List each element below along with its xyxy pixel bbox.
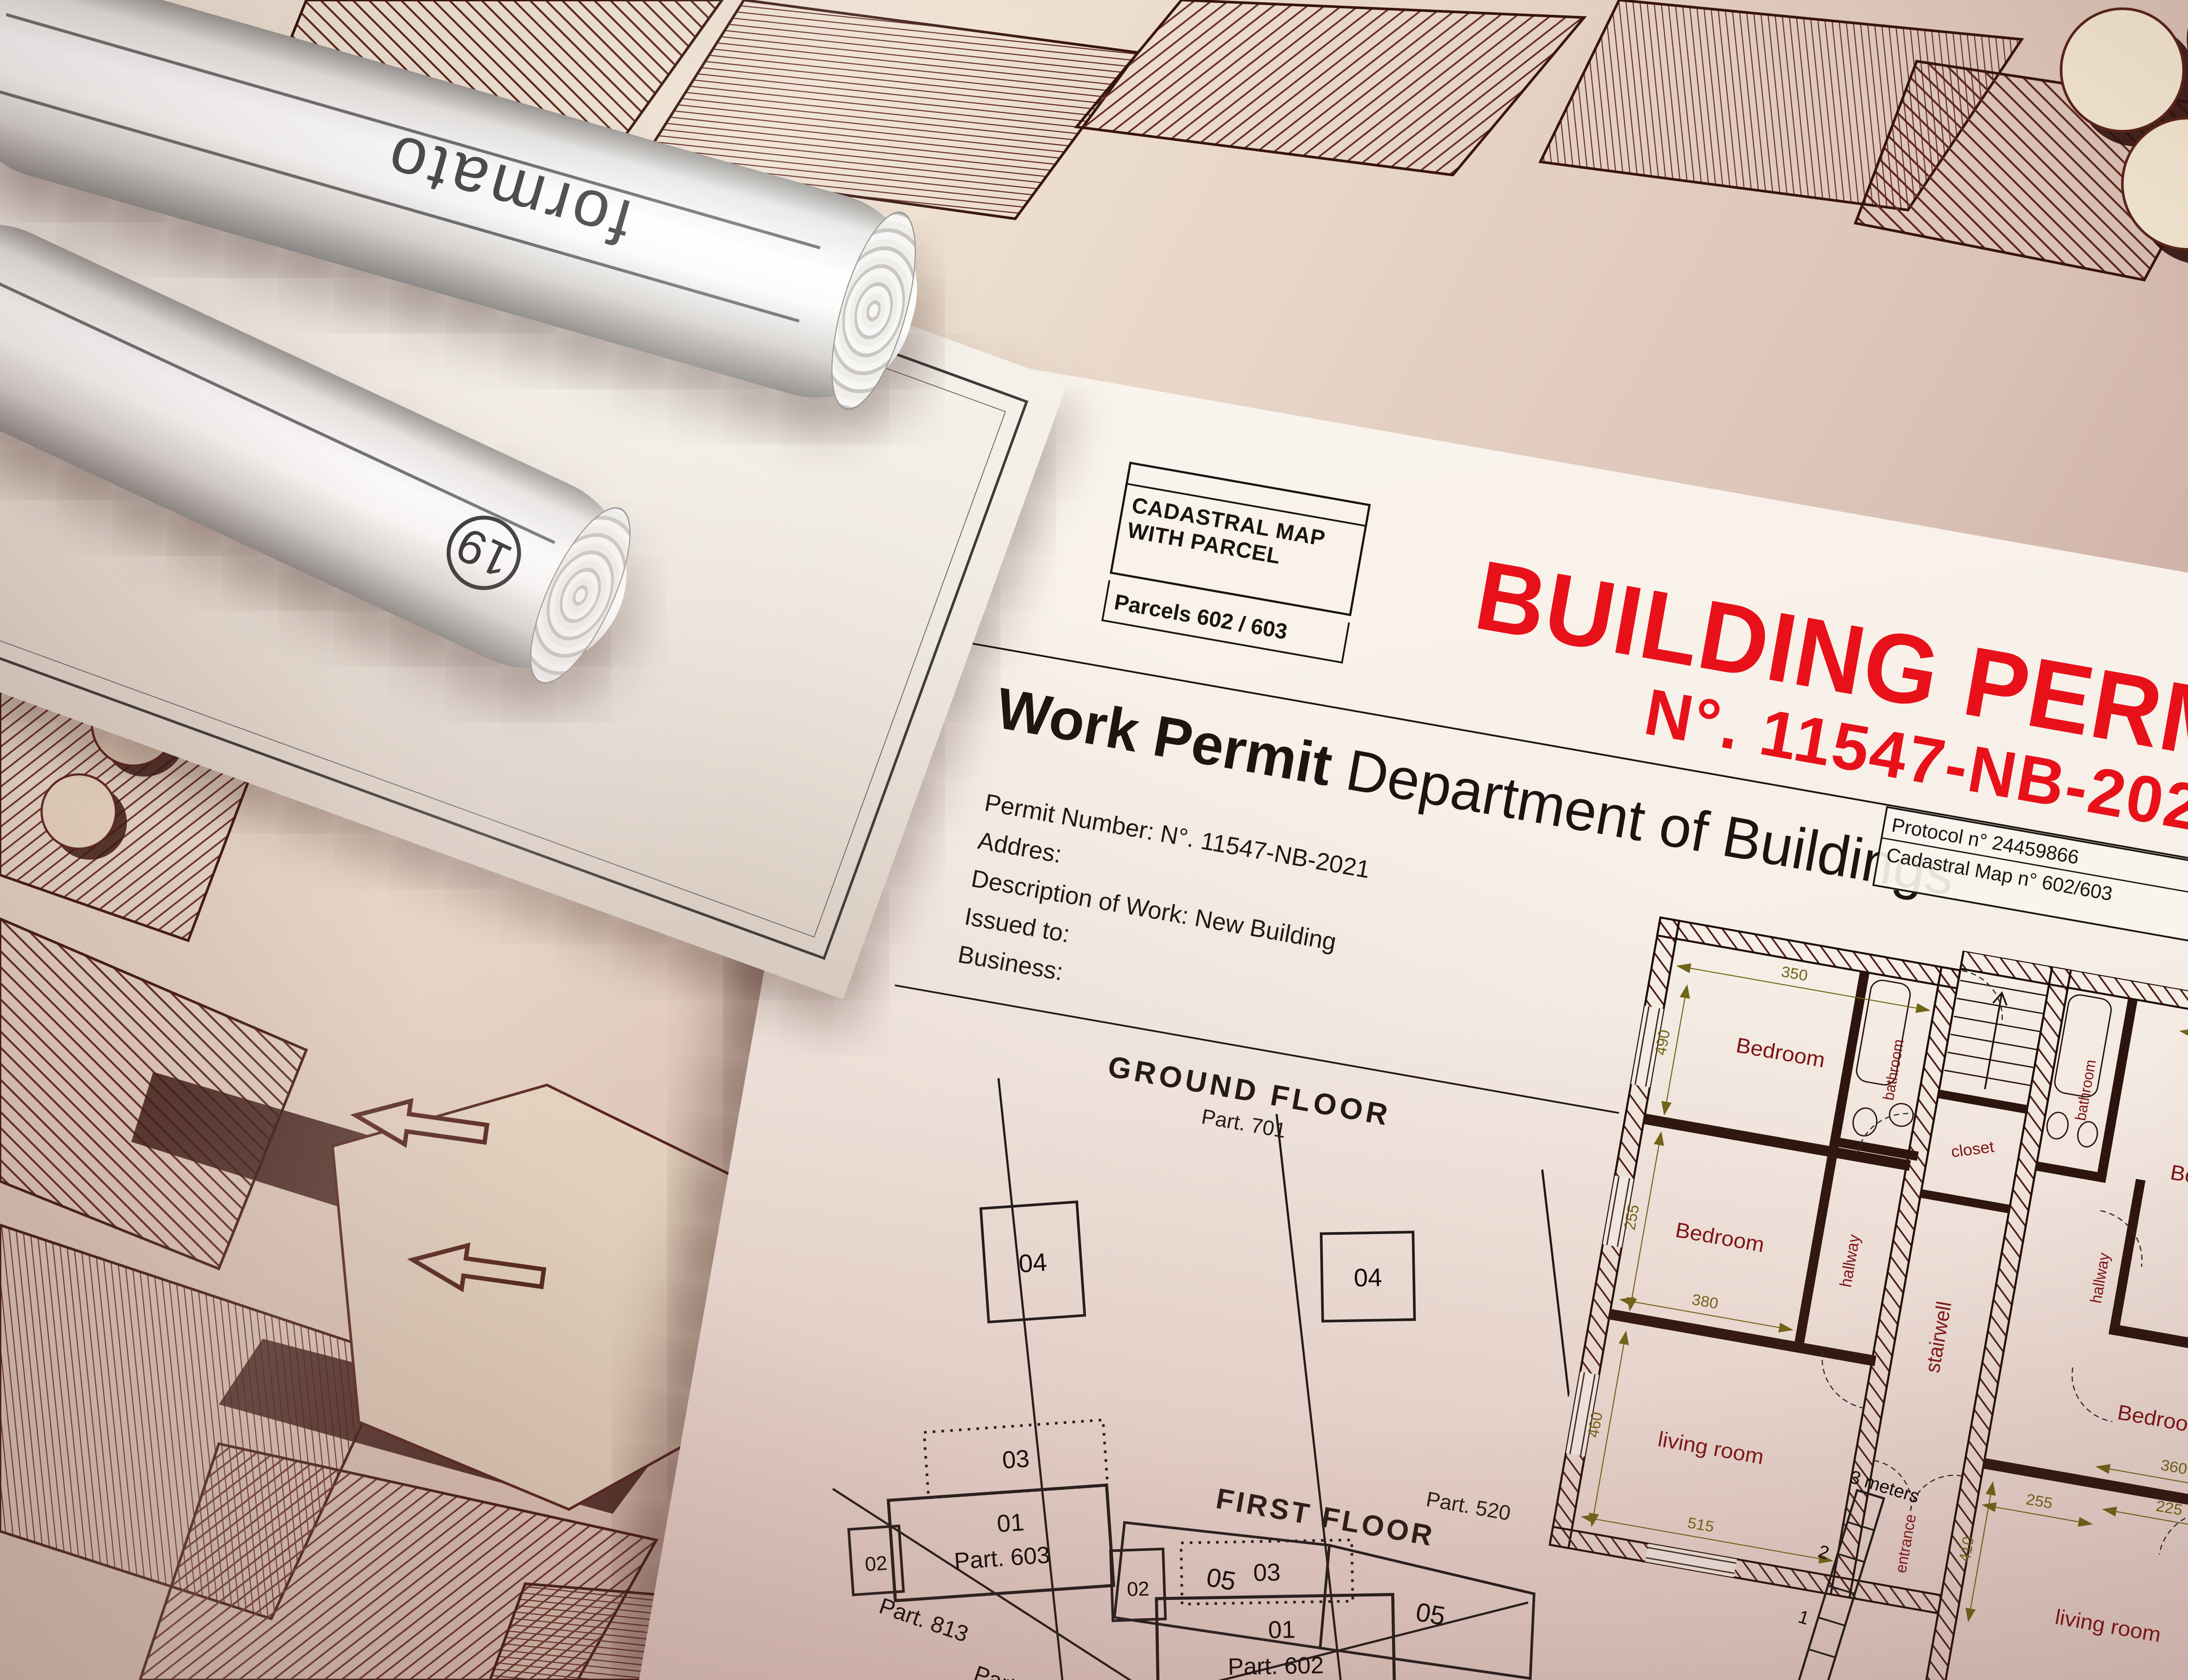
parcel-dotted-03: 03 bbox=[1001, 1445, 1031, 1474]
first-floor-unit-05: 05 bbox=[1204, 1562, 1238, 1596]
photo-of-building-permit: formato 19 CADASTRAL MAP WITH PARCEL Par… bbox=[0, 0, 2188, 1680]
dim-255-right: 255 bbox=[2025, 1491, 2054, 1512]
first-floor-unit-05: 05 bbox=[1413, 1597, 1447, 1631]
dim-350: 350 bbox=[1780, 963, 1809, 984]
room-label-bedroom: Bedroom bbox=[2168, 1160, 2188, 1199]
parcel-label-813: Part. 813 bbox=[876, 1593, 971, 1648]
scale-bar-1: 1 bbox=[1796, 1606, 1812, 1629]
parcel-label-206: Part. 206 bbox=[971, 1661, 1066, 1680]
work-permit-heading: Work Permit bbox=[992, 675, 1337, 798]
room-label-living-room: living room bbox=[2053, 1605, 2163, 1647]
room-label-bathroom: bathroom bbox=[1880, 1038, 1907, 1102]
building-part-602: Part. 602 bbox=[1227, 1652, 1324, 1680]
room-label-bedroom: Bedroom bbox=[1674, 1218, 1767, 1257]
permit-fields: Permit Number: N°. 11547-NB-2021 Addres:… bbox=[955, 783, 1373, 1040]
dim-380: 380 bbox=[1690, 1291, 1720, 1312]
parcel-small-02: 02 bbox=[864, 1551, 888, 1575]
parcel-square-04: 04 bbox=[1353, 1263, 1382, 1292]
room-label-hallway: hallway bbox=[2087, 1251, 2113, 1305]
building-01-num: 01 bbox=[996, 1508, 1025, 1537]
room-label-bathroom: bathroom bbox=[2072, 1058, 2100, 1122]
dim-515: 515 bbox=[1686, 1514, 1715, 1536]
room-label-bedroom: Bedroom bbox=[1734, 1033, 1827, 1072]
room-label-hallway: hallway bbox=[1836, 1233, 1863, 1288]
roll-upside-down-text: formato bbox=[375, 118, 640, 261]
room-label-closet: closet bbox=[1950, 1137, 1995, 1161]
roll-number-badge: 19 bbox=[435, 504, 533, 602]
building-part-603: Part. 603 bbox=[953, 1542, 1051, 1575]
room-label-living-room: living room bbox=[1656, 1427, 1765, 1469]
dim-360: 360 bbox=[2160, 1456, 2188, 1478]
parcel-square-04: 04 bbox=[1018, 1248, 1048, 1278]
room-label-bedroom: Bedroom bbox=[2116, 1400, 2188, 1439]
plan-partitions bbox=[1595, 919, 2188, 1517]
scale-bar-2: 2 bbox=[1816, 1541, 1832, 1564]
room-label-stairwell: stairwell bbox=[1921, 1300, 1956, 1375]
